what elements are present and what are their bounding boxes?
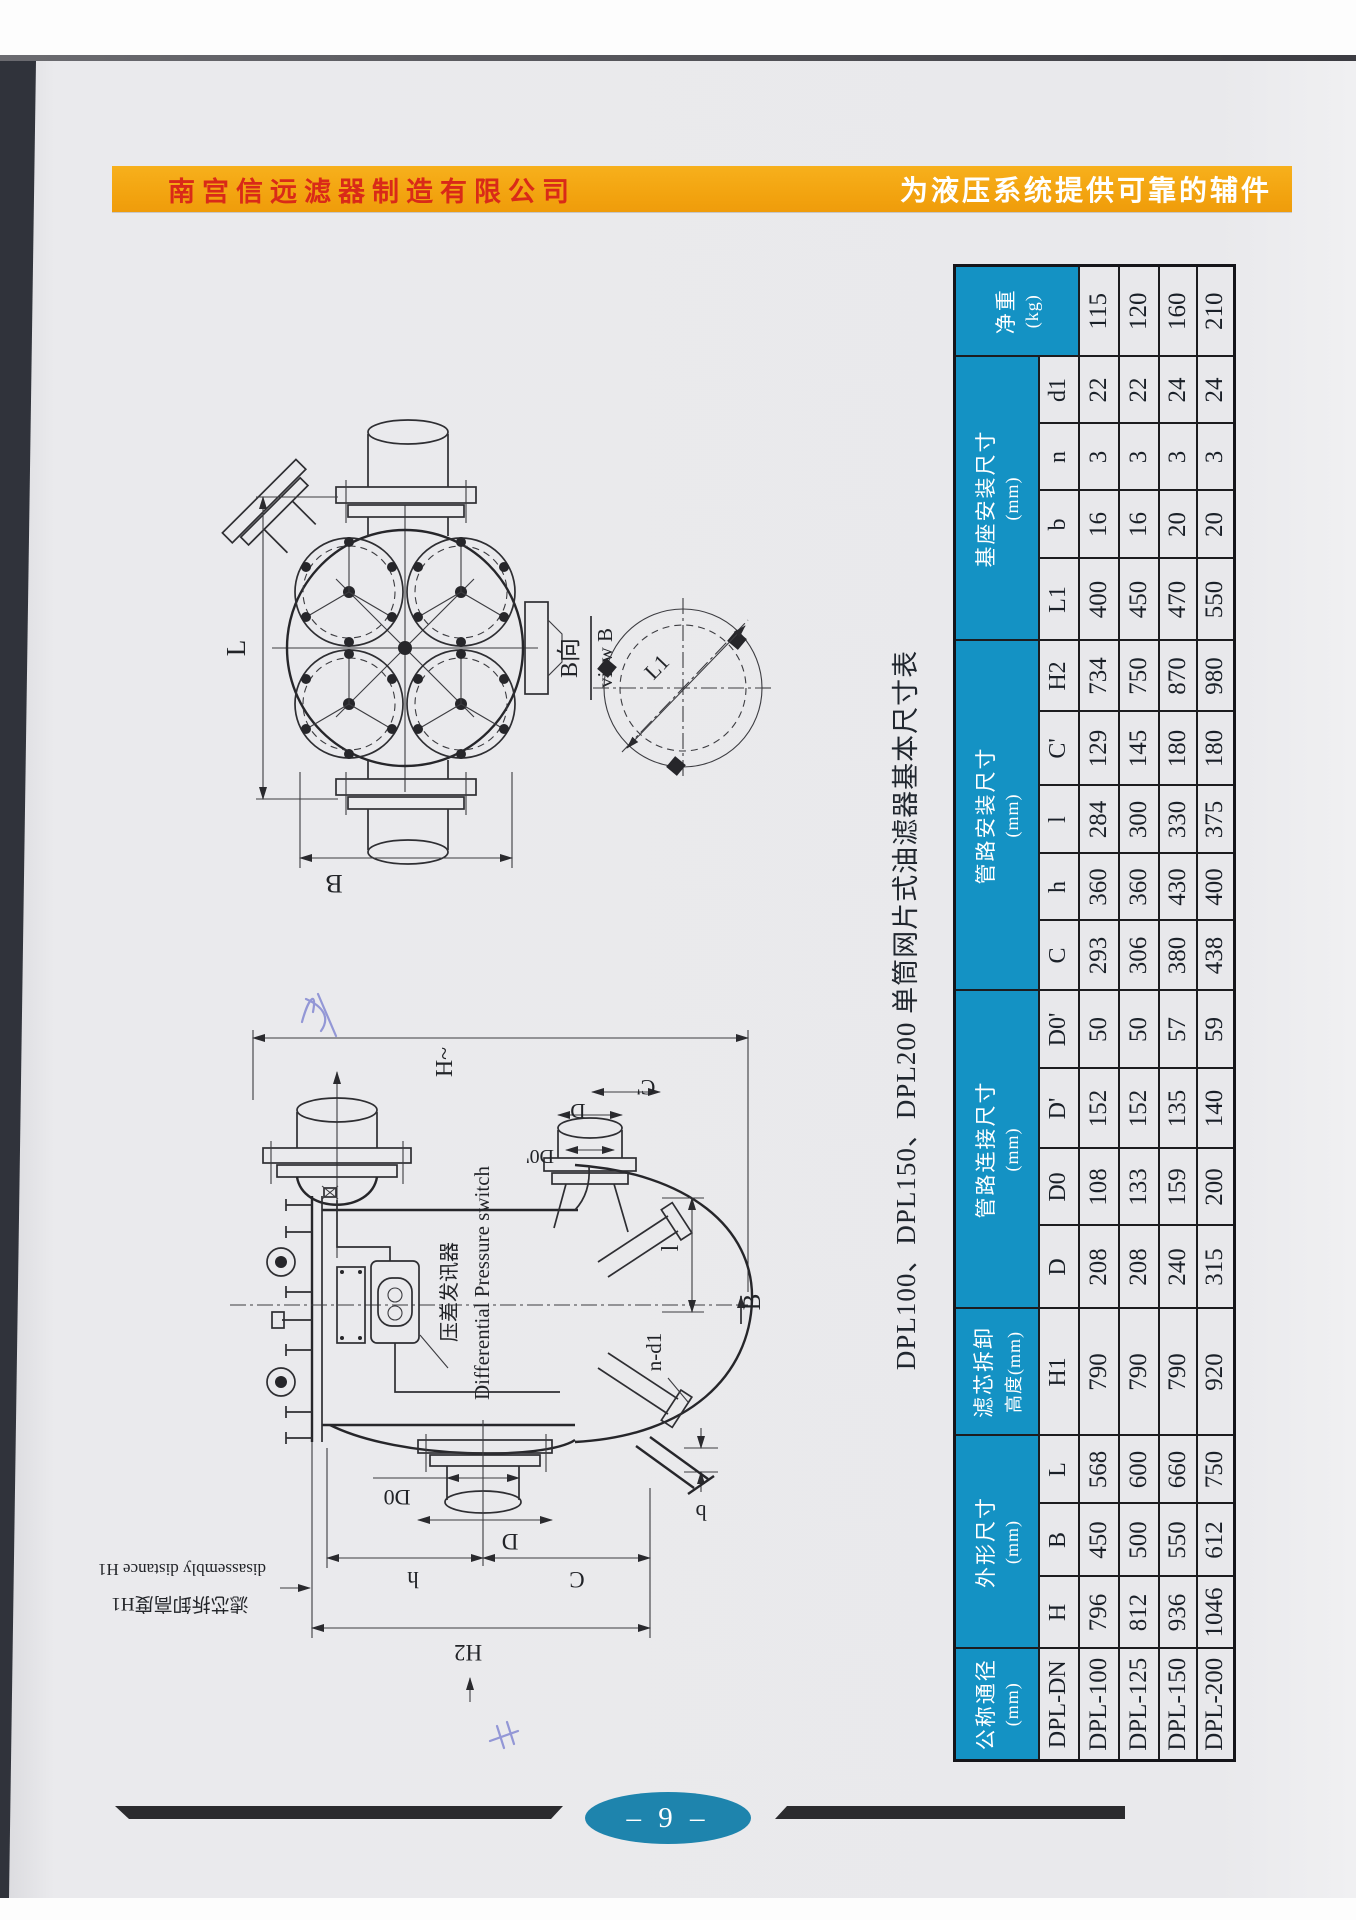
footer-rule-right (775, 1806, 1125, 1819)
value-cell: 50 (1079, 990, 1119, 1068)
table-title: DPL100、DPL150、DPL200 单筒网片式油滤器基本尺寸表 (886, 560, 926, 1460)
value-cell: 438 (1197, 920, 1235, 990)
value-cell: 750 (1119, 640, 1159, 711)
value-cell: 240 (1159, 1225, 1197, 1308)
table-row: DPL-150936550660790240159135573804303301… (1159, 265, 1197, 1760)
value-cell: 200 (1197, 1148, 1235, 1225)
value-cell: 1046 (1197, 1577, 1235, 1649)
col-subheader: H1 (1039, 1308, 1079, 1435)
cover-bolts (267, 1199, 312, 1444)
view-b-label-cn: B向 (556, 638, 583, 678)
col-subheader: n (1039, 423, 1079, 490)
side-view-dim-C: C (569, 1567, 584, 1592)
scanned-catalog-page: 南宫信远滤器制造有限公司 为液压系统提供可靠的辅件 (0, 0, 1356, 1920)
value-cell: 180 (1197, 711, 1235, 785)
col-group-header: 管路连接尺寸(mm) (955, 990, 1039, 1308)
side-view-dim-H: H~ (432, 1047, 458, 1077)
value-cell: 430 (1159, 853, 1197, 920)
value-cell: 380 (1159, 920, 1197, 990)
footer-rule-left (115, 1806, 563, 1819)
value-cell: 660 (1159, 1435, 1197, 1503)
value-cell: 612 (1197, 1504, 1235, 1577)
side-view-dim-D0: D0 (384, 1485, 411, 1510)
value-cell: 450 (1119, 558, 1159, 640)
value-cell: 790 (1079, 1308, 1119, 1435)
page-number: – 9 – (627, 1802, 710, 1835)
side-view-dim-l: l (658, 1244, 684, 1251)
value-cell: 59 (1197, 990, 1235, 1068)
value-cell: 22 (1079, 356, 1119, 423)
value-cell: 135 (1159, 1068, 1197, 1148)
value-cell: 24 (1159, 356, 1197, 423)
bolt-count-note: n-d1 (642, 1333, 666, 1372)
dp-switch-label-en: Differential Pressure switch (470, 1165, 494, 1400)
value-cell: 812 (1119, 1577, 1159, 1649)
col-subheader: B (1039, 1504, 1079, 1577)
col-subheader: C' (1039, 711, 1079, 785)
paper-sheet: 南宫信远滤器制造有限公司 为液压系统提供可靠的辅件 (0, 61, 1356, 1898)
col-subheader: L1 (1039, 558, 1079, 640)
value-cell: 3 (1197, 423, 1235, 490)
col-subheader: l (1039, 785, 1079, 853)
value-cell: 870 (1159, 640, 1197, 711)
col-subheader: L (1039, 1435, 1079, 1503)
value-cell: 330 (1159, 785, 1197, 853)
value-cell: 300 (1119, 785, 1159, 853)
side-view-dim-b: b (696, 1500, 707, 1525)
removal-height-en: disassembly distance H1 (98, 1560, 266, 1579)
value-cell: 133 (1119, 1148, 1159, 1225)
value-cell: 3 (1159, 423, 1197, 490)
dimension-table: 公称通径(mm)外形尺寸(mm)滤芯拆卸高度(mm)管路连接尺寸(mm)管路安装… (953, 264, 1236, 1762)
side-view-drawing: H~ (98, 1030, 766, 1702)
value-cell: 152 (1079, 1068, 1119, 1148)
value-cell: 120 (1119, 265, 1159, 356)
value-cell: 450 (1079, 1504, 1119, 1577)
dimension-table-rotated: 公称通径(mm)外形尺寸(mm)滤芯拆卸高度(mm)管路连接尺寸(mm)管路安装… (953, 267, 1233, 1762)
value-cell: 470 (1159, 558, 1197, 640)
side-view-dim-H2: H2 (454, 1640, 482, 1665)
value-cell: 400 (1197, 853, 1235, 920)
value-cell: 306 (1119, 920, 1159, 990)
value-cell: 20 (1159, 490, 1197, 558)
value-cell: 293 (1079, 920, 1119, 990)
side-view-dim-D-prime: D' (567, 1099, 586, 1123)
col-group-header: 外形尺寸(mm) (955, 1435, 1039, 1648)
value-cell: 210 (1197, 265, 1235, 356)
value-cell: 152 (1119, 1068, 1159, 1148)
value-cell: 129 (1079, 711, 1119, 785)
col-group-header: 基座安装尺寸(mm) (955, 356, 1039, 640)
value-cell: 796 (1079, 1577, 1119, 1649)
value-cell: 734 (1079, 640, 1119, 711)
value-cell: 550 (1159, 1504, 1197, 1577)
col-group-header: 滤芯拆卸高度(mm) (955, 1308, 1039, 1435)
value-cell: 208 (1119, 1225, 1159, 1308)
value-cell: 115 (1079, 265, 1119, 356)
col-subheader: d1 (1039, 356, 1079, 423)
value-cell: 24 (1197, 356, 1235, 423)
col-group-header: 公称通径(mm) (955, 1649, 1039, 1761)
value-cell: 750 (1197, 1435, 1235, 1503)
value-cell: 145 (1119, 711, 1159, 785)
value-cell: 315 (1197, 1225, 1235, 1308)
col-subheader: H (1039, 1577, 1079, 1649)
value-cell: 920 (1197, 1308, 1235, 1435)
col-group-header: 管路安装尺寸(mm) (955, 640, 1039, 990)
row-model: DPL-100 (1079, 1649, 1119, 1761)
side-view-dim-C-prime: C' (637, 1075, 656, 1100)
side-view-dim-D0-prime: D0' (526, 1145, 554, 1167)
value-cell: 936 (1159, 1577, 1197, 1649)
value-cell: 20 (1197, 490, 1235, 558)
value-cell: 375 (1197, 785, 1235, 853)
value-cell: 16 (1119, 490, 1159, 558)
value-cell: 159 (1159, 1148, 1197, 1225)
side-view-dim-D: D (502, 1529, 519, 1554)
value-cell: 50 (1119, 990, 1159, 1068)
value-cell: 3 (1079, 423, 1119, 490)
value-cell: 140 (1197, 1068, 1235, 1148)
value-cell: 208 (1079, 1225, 1119, 1308)
value-cell: 980 (1197, 640, 1235, 711)
col-group-header: 净重(kg) (955, 265, 1079, 356)
row-model: DPL-150 (1159, 1649, 1197, 1761)
col-subheader: H2 (1039, 640, 1079, 711)
col-subheader: D0' (1039, 990, 1079, 1068)
value-cell: 600 (1119, 1435, 1159, 1503)
side-view-view-B: B (739, 1294, 766, 1311)
table-row: DPL-100796450568790208108152502933602841… (1079, 265, 1119, 1760)
col-subheader: D0 (1039, 1148, 1079, 1225)
value-cell: 550 (1197, 558, 1235, 640)
col-subheader: C (1039, 920, 1079, 990)
value-cell: 3 (1119, 423, 1159, 490)
value-cell: 360 (1079, 853, 1119, 920)
top-view-dim-B: B (325, 869, 342, 898)
col-subheader: h (1039, 853, 1079, 920)
value-cell: 790 (1159, 1308, 1197, 1435)
row-model: DPL-125 (1119, 1649, 1159, 1761)
col-subheader: D' (1039, 1068, 1079, 1148)
value-cell: 57 (1159, 990, 1197, 1068)
side-view-dim-h: h (407, 1567, 419, 1592)
top-view-drawing: L B B向 view B (221, 420, 617, 898)
col-subheader: D (1039, 1225, 1079, 1308)
value-cell: 500 (1119, 1504, 1159, 1577)
page-number-badge: – 9 – (585, 1792, 751, 1844)
value-cell: 160 (1159, 265, 1197, 356)
table-row: DPL-125812500600790208133152503063603001… (1119, 265, 1159, 1760)
col-subheader: b (1039, 490, 1079, 558)
value-cell: 400 (1079, 558, 1119, 640)
base-detail-dim-L1: L1 (639, 649, 674, 684)
value-cell: 108 (1079, 1148, 1119, 1225)
base-detail-drawing: L1 (593, 598, 773, 778)
value-cell: 22 (1119, 356, 1159, 423)
value-cell: 284 (1079, 785, 1119, 853)
table-row: DPL-200104661275092031520014059438400375… (1197, 265, 1235, 1760)
top-view-dim-L: L (221, 640, 251, 657)
value-cell: 360 (1119, 853, 1159, 920)
value-cell: 790 (1119, 1308, 1159, 1435)
value-cell: 16 (1079, 490, 1119, 558)
dp-switch-label-cn: 压差发讯器 (438, 1242, 461, 1342)
removal-height-cn: 滤芯拆卸高度H1 (111, 1593, 248, 1615)
value-cell: 568 (1079, 1435, 1119, 1503)
col-subheader: DPL-DN (1039, 1649, 1079, 1761)
value-cell: 180 (1159, 711, 1197, 785)
row-model: DPL-200 (1197, 1649, 1235, 1761)
